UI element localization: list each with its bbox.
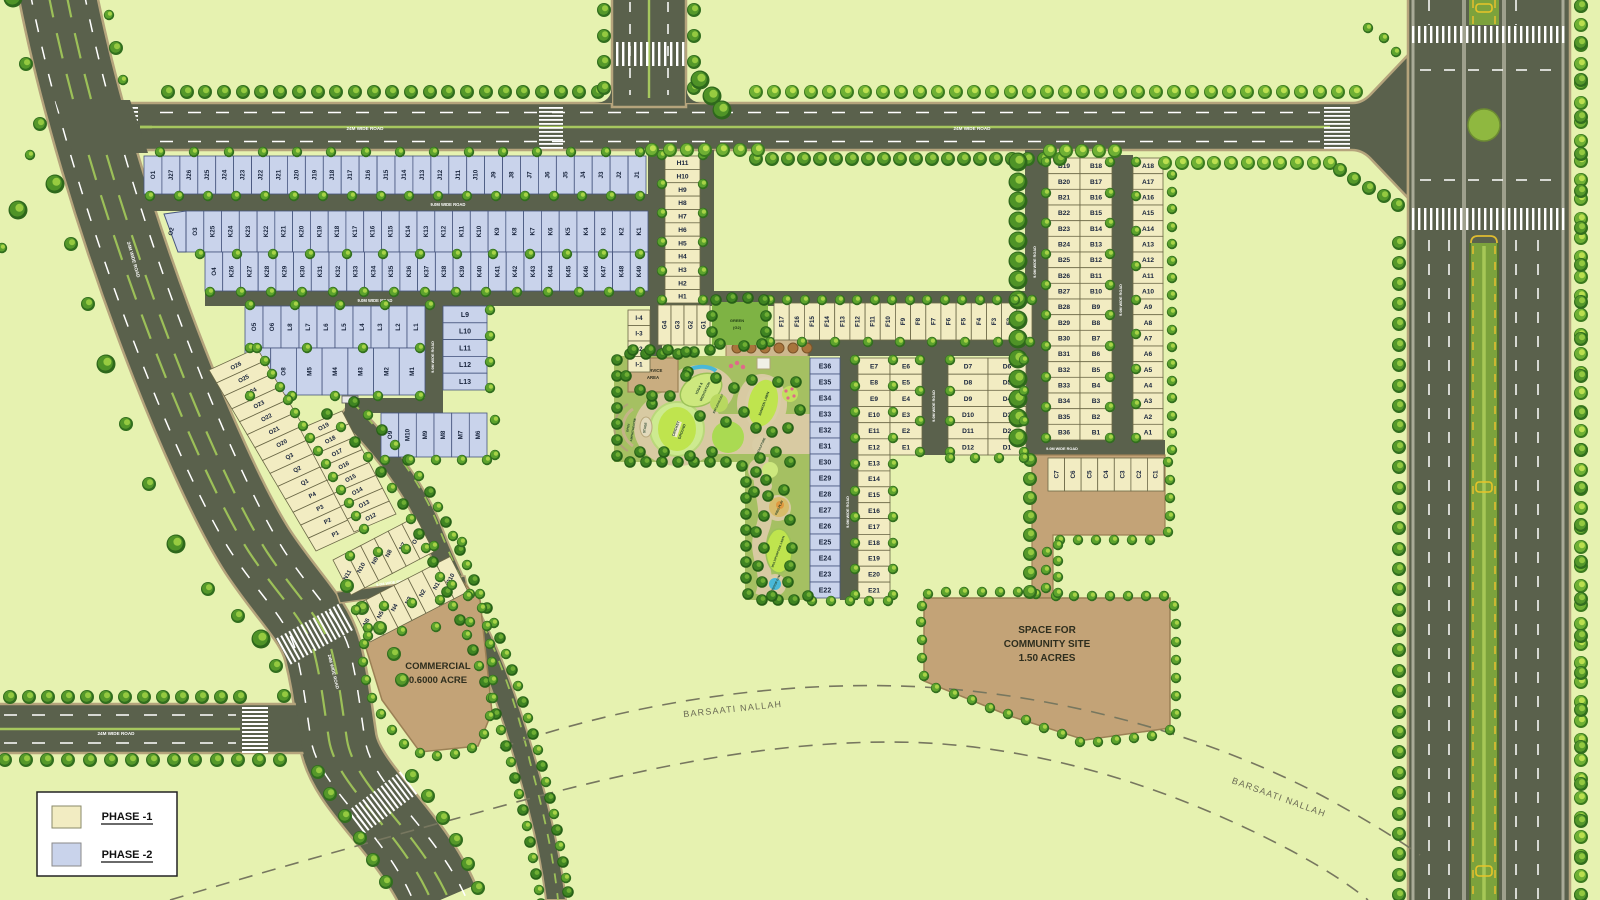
svg-text:K49: K49 bbox=[636, 265, 643, 277]
svg-text:D12: D12 bbox=[962, 444, 974, 451]
svg-text:F4: F4 bbox=[976, 317, 983, 325]
svg-text:J7: J7 bbox=[527, 171, 534, 179]
svg-text:F13: F13 bbox=[839, 316, 846, 327]
svg-text:B3: B3 bbox=[1092, 398, 1101, 405]
svg-text:K1: K1 bbox=[636, 227, 643, 236]
svg-text:J11: J11 bbox=[455, 169, 462, 180]
svg-text:H9: H9 bbox=[678, 187, 687, 194]
svg-text:B25: B25 bbox=[1058, 257, 1070, 264]
svg-text:K2: K2 bbox=[618, 227, 625, 236]
svg-text:E12: E12 bbox=[868, 444, 880, 451]
svg-text:E35: E35 bbox=[819, 379, 832, 386]
svg-text:K4: K4 bbox=[583, 227, 590, 236]
svg-text:K20: K20 bbox=[299, 225, 306, 237]
svg-text:J25: J25 bbox=[204, 169, 211, 180]
svg-text:H3: H3 bbox=[678, 267, 687, 274]
svg-text:K19: K19 bbox=[316, 225, 323, 237]
svg-text:E1: E1 bbox=[902, 444, 910, 451]
svg-text:9.0M WIDE ROAD: 9.0M WIDE ROAD bbox=[1046, 447, 1078, 451]
svg-text:J13: J13 bbox=[419, 169, 426, 180]
svg-text:B29: B29 bbox=[1058, 320, 1070, 327]
svg-text:A14: A14 bbox=[1142, 226, 1154, 233]
svg-text:B12: B12 bbox=[1090, 257, 1102, 264]
svg-text:K3: K3 bbox=[601, 227, 608, 236]
svg-text:J2: J2 bbox=[616, 171, 623, 179]
svg-text:B6: B6 bbox=[1092, 351, 1101, 358]
svg-text:K18: K18 bbox=[334, 225, 341, 237]
svg-text:B18: B18 bbox=[1090, 163, 1102, 170]
svg-text:E16: E16 bbox=[868, 508, 880, 515]
svg-text:H7: H7 bbox=[678, 214, 687, 221]
svg-text:E20: E20 bbox=[868, 572, 880, 579]
svg-text:J6: J6 bbox=[544, 171, 551, 179]
svg-text:K41: K41 bbox=[494, 265, 501, 277]
svg-text:K30: K30 bbox=[300, 265, 307, 277]
svg-text:9.0M WIDE ROAD: 9.0M WIDE ROAD bbox=[431, 341, 435, 373]
svg-text:B5: B5 bbox=[1092, 367, 1101, 374]
svg-text:A7: A7 bbox=[1144, 336, 1153, 343]
svg-text:L7: L7 bbox=[305, 323, 312, 331]
svg-text:E7: E7 bbox=[870, 364, 878, 371]
svg-text:B30: B30 bbox=[1058, 336, 1070, 343]
svg-text:E28: E28 bbox=[819, 491, 832, 498]
svg-text:H8: H8 bbox=[678, 200, 687, 207]
svg-text:(G2): (G2) bbox=[733, 325, 742, 330]
svg-text:O1: O1 bbox=[150, 170, 157, 179]
svg-text:K7: K7 bbox=[530, 227, 537, 236]
svg-text:E36: E36 bbox=[819, 363, 832, 370]
svg-text:J19: J19 bbox=[311, 169, 318, 180]
svg-text:M9: M9 bbox=[422, 430, 429, 439]
svg-text:M4: M4 bbox=[332, 367, 339, 376]
svg-text:D8: D8 bbox=[964, 380, 973, 387]
svg-text:B10: B10 bbox=[1090, 289, 1102, 296]
svg-text:E17: E17 bbox=[868, 524, 880, 531]
svg-text:F17: F17 bbox=[779, 316, 786, 327]
svg-text:F14: F14 bbox=[824, 316, 831, 327]
svg-text:J8: J8 bbox=[509, 171, 516, 179]
svg-text:A13: A13 bbox=[1142, 242, 1154, 249]
svg-text:E23: E23 bbox=[819, 571, 832, 578]
svg-text:O3: O3 bbox=[192, 227, 199, 236]
svg-text:L5: L5 bbox=[341, 323, 348, 331]
svg-text:H2: H2 bbox=[678, 280, 687, 287]
svg-text:A17: A17 bbox=[1142, 179, 1154, 186]
svg-text:C6: C6 bbox=[1070, 470, 1077, 479]
svg-text:M2: M2 bbox=[383, 367, 390, 376]
svg-text:E4: E4 bbox=[902, 396, 910, 403]
svg-text:B21: B21 bbox=[1058, 195, 1070, 202]
svg-text:F12: F12 bbox=[855, 316, 862, 327]
svg-text:K43: K43 bbox=[530, 265, 537, 277]
svg-text:K6: K6 bbox=[547, 227, 554, 236]
svg-text:PHASE -1: PHASE -1 bbox=[102, 811, 153, 823]
svg-text:J21: J21 bbox=[276, 169, 283, 180]
svg-text:M7: M7 bbox=[458, 430, 465, 439]
svg-text:K12: K12 bbox=[441, 225, 448, 237]
svg-text:B11: B11 bbox=[1090, 273, 1102, 280]
svg-text:F16: F16 bbox=[794, 316, 801, 327]
svg-text:SPACE FOR: SPACE FOR bbox=[1018, 625, 1076, 636]
svg-text:L6: L6 bbox=[323, 323, 330, 331]
svg-text:B31: B31 bbox=[1058, 351, 1070, 358]
svg-text:B22: B22 bbox=[1058, 210, 1070, 217]
svg-text:J17: J17 bbox=[347, 169, 354, 180]
svg-text:B15: B15 bbox=[1090, 210, 1102, 217]
svg-text:A5: A5 bbox=[1144, 367, 1153, 374]
svg-text:D11: D11 bbox=[962, 428, 974, 435]
svg-text:E14: E14 bbox=[868, 476, 880, 483]
svg-text:A3: A3 bbox=[1144, 398, 1153, 405]
svg-text:E27: E27 bbox=[819, 507, 832, 514]
svg-text:C5: C5 bbox=[1086, 470, 1093, 479]
svg-text:L13: L13 bbox=[459, 379, 471, 386]
svg-text:E15: E15 bbox=[868, 492, 880, 499]
svg-text:1.50 ACRES: 1.50 ACRES bbox=[1019, 653, 1076, 664]
svg-text:K22: K22 bbox=[263, 225, 270, 237]
svg-text:L2: L2 bbox=[395, 323, 402, 331]
svg-text:O4: O4 bbox=[211, 267, 218, 276]
svg-text:A16: A16 bbox=[1142, 195, 1154, 202]
svg-text:L12: L12 bbox=[459, 362, 471, 369]
svg-text:J1: J1 bbox=[634, 171, 641, 179]
svg-text:B2: B2 bbox=[1092, 414, 1101, 421]
svg-text:G4: G4 bbox=[662, 320, 669, 329]
svg-text:E3: E3 bbox=[902, 412, 910, 419]
svg-text:COMMUNITY SITE: COMMUNITY SITE bbox=[1004, 639, 1091, 650]
svg-text:9.0M WIDE ROAD: 9.0M WIDE ROAD bbox=[431, 202, 466, 207]
svg-text:H4: H4 bbox=[678, 254, 687, 261]
svg-text:A15: A15 bbox=[1142, 210, 1154, 217]
svg-text:A2: A2 bbox=[1144, 414, 1153, 421]
svg-text:J4: J4 bbox=[580, 171, 587, 179]
svg-text:J14: J14 bbox=[401, 169, 408, 180]
svg-text:E25: E25 bbox=[819, 539, 832, 546]
svg-text:J26: J26 bbox=[186, 169, 193, 180]
svg-text:D7: D7 bbox=[964, 364, 973, 371]
svg-text:K45: K45 bbox=[565, 265, 572, 277]
svg-text:K21: K21 bbox=[281, 225, 288, 237]
svg-text:M5: M5 bbox=[306, 367, 313, 376]
svg-text:C1: C1 bbox=[1153, 470, 1160, 479]
svg-text:K23: K23 bbox=[245, 225, 252, 237]
svg-text:K47: K47 bbox=[601, 265, 608, 277]
svg-text:O9: O9 bbox=[387, 430, 394, 439]
svg-text:B36: B36 bbox=[1058, 430, 1070, 437]
svg-text:A6: A6 bbox=[1144, 351, 1153, 358]
svg-text:E31: E31 bbox=[819, 443, 832, 450]
svg-text:F11: F11 bbox=[870, 316, 877, 327]
svg-text:D1: D1 bbox=[1003, 444, 1012, 451]
svg-text:K28: K28 bbox=[264, 265, 271, 277]
svg-text:O6: O6 bbox=[269, 322, 276, 331]
svg-text:K37: K37 bbox=[424, 265, 431, 277]
svg-text:A9: A9 bbox=[1144, 304, 1153, 311]
svg-text:K15: K15 bbox=[387, 225, 394, 237]
svg-text:24M WIDE ROAD: 24M WIDE ROAD bbox=[953, 126, 991, 131]
svg-text:B1: B1 bbox=[1092, 430, 1101, 437]
svg-text:M6: M6 bbox=[475, 430, 482, 439]
svg-text:E2: E2 bbox=[902, 428, 910, 435]
svg-text:I-3: I-3 bbox=[635, 331, 643, 338]
svg-text:B35: B35 bbox=[1058, 414, 1070, 421]
svg-text:K33: K33 bbox=[353, 265, 360, 277]
svg-text:C3: C3 bbox=[1120, 470, 1127, 479]
svg-text:E24: E24 bbox=[819, 555, 832, 562]
svg-text:K48: K48 bbox=[618, 265, 625, 277]
svg-text:E26: E26 bbox=[819, 523, 832, 530]
svg-text:K8: K8 bbox=[512, 227, 519, 236]
svg-text:E33: E33 bbox=[819, 411, 832, 418]
svg-text:L10: L10 bbox=[459, 329, 471, 336]
svg-text:E22: E22 bbox=[819, 587, 832, 594]
svg-text:J24: J24 bbox=[222, 169, 229, 180]
svg-text:C4: C4 bbox=[1103, 470, 1110, 479]
svg-text:B33: B33 bbox=[1058, 383, 1070, 390]
svg-text:E9: E9 bbox=[870, 396, 878, 403]
svg-text:J23: J23 bbox=[240, 169, 247, 180]
svg-text:B28: B28 bbox=[1058, 304, 1070, 311]
svg-text:J9: J9 bbox=[491, 171, 498, 179]
svg-text:F5: F5 bbox=[961, 317, 968, 325]
svg-text:B26: B26 bbox=[1058, 273, 1070, 280]
svg-text:F3: F3 bbox=[991, 317, 998, 325]
svg-text:9.0M WIDE ROAD: 9.0M WIDE ROAD bbox=[1033, 246, 1037, 278]
svg-text:B8: B8 bbox=[1092, 320, 1101, 327]
svg-text:A8: A8 bbox=[1144, 320, 1153, 327]
svg-text:K29: K29 bbox=[282, 265, 289, 277]
svg-text:B9: B9 bbox=[1092, 304, 1101, 311]
svg-text:K42: K42 bbox=[512, 265, 519, 277]
svg-text:M8: M8 bbox=[440, 430, 447, 439]
svg-text:L8: L8 bbox=[287, 323, 294, 331]
svg-text:K46: K46 bbox=[583, 265, 590, 277]
svg-text:H6: H6 bbox=[678, 227, 687, 234]
svg-text:B7: B7 bbox=[1092, 336, 1101, 343]
svg-text:F8: F8 bbox=[915, 317, 922, 325]
svg-text:K11: K11 bbox=[458, 225, 465, 237]
svg-text:O8: O8 bbox=[281, 367, 288, 376]
svg-text:F9: F9 bbox=[900, 317, 907, 325]
svg-text:G1: G1 bbox=[701, 320, 708, 329]
svg-text:A11: A11 bbox=[1142, 273, 1154, 280]
svg-text:K9: K9 bbox=[494, 227, 501, 236]
svg-text:K5: K5 bbox=[565, 227, 572, 236]
svg-text:D6: D6 bbox=[1003, 364, 1012, 371]
svg-text:A18: A18 bbox=[1142, 163, 1154, 170]
svg-text:E21: E21 bbox=[868, 588, 880, 595]
svg-text:K44: K44 bbox=[548, 265, 555, 277]
svg-text:K32: K32 bbox=[335, 265, 342, 277]
svg-text:J10: J10 bbox=[473, 169, 480, 180]
svg-text:K16: K16 bbox=[370, 225, 377, 237]
svg-text:L11: L11 bbox=[459, 345, 471, 352]
svg-text:F10: F10 bbox=[885, 316, 892, 327]
svg-text:D9: D9 bbox=[964, 396, 973, 403]
svg-text:K35: K35 bbox=[388, 265, 395, 277]
svg-text:COMMERCIAL: COMMERCIAL bbox=[405, 661, 471, 672]
svg-text:B20: B20 bbox=[1058, 179, 1070, 186]
svg-text:M3: M3 bbox=[358, 367, 365, 376]
svg-text:K40: K40 bbox=[477, 265, 484, 277]
svg-text:K24: K24 bbox=[227, 225, 234, 237]
svg-text:0.6000 ACRE: 0.6000 ACRE bbox=[409, 675, 467, 686]
svg-text:K14: K14 bbox=[405, 225, 412, 237]
svg-text:J12: J12 bbox=[437, 169, 444, 180]
svg-text:B13: B13 bbox=[1090, 242, 1102, 249]
svg-text:E30: E30 bbox=[819, 459, 832, 466]
svg-text:K17: K17 bbox=[352, 225, 359, 237]
svg-text:F15: F15 bbox=[809, 316, 816, 327]
svg-text:C7: C7 bbox=[1053, 470, 1060, 479]
svg-text:K31: K31 bbox=[317, 265, 324, 277]
svg-text:E18: E18 bbox=[868, 540, 880, 547]
svg-text:K38: K38 bbox=[441, 265, 448, 277]
svg-text:K34: K34 bbox=[370, 265, 377, 277]
svg-text:H1: H1 bbox=[678, 294, 687, 301]
svg-text:G3: G3 bbox=[675, 320, 682, 329]
svg-text:B24: B24 bbox=[1058, 242, 1070, 249]
svg-text:E29: E29 bbox=[819, 475, 832, 482]
svg-text:24M WIDE ROAD: 24M WIDE ROAD bbox=[97, 731, 135, 736]
svg-text:E10: E10 bbox=[868, 412, 880, 419]
svg-text:M10: M10 bbox=[405, 428, 412, 441]
svg-text:C2: C2 bbox=[1136, 470, 1143, 479]
svg-text:K36: K36 bbox=[406, 265, 413, 277]
svg-text:K27: K27 bbox=[246, 265, 253, 277]
svg-text:I-4: I-4 bbox=[635, 315, 643, 322]
svg-text:B34: B34 bbox=[1058, 398, 1070, 405]
svg-text:J15: J15 bbox=[383, 169, 390, 180]
svg-text:24M WIDE ROAD: 24M WIDE ROAD bbox=[346, 126, 384, 131]
svg-text:AREA: AREA bbox=[647, 375, 659, 380]
svg-text:D10: D10 bbox=[962, 412, 974, 419]
svg-text:J22: J22 bbox=[258, 169, 265, 180]
svg-text:F7: F7 bbox=[930, 317, 937, 325]
svg-text:M1: M1 bbox=[409, 367, 416, 376]
svg-text:B32: B32 bbox=[1058, 367, 1070, 374]
svg-text:GREEN: GREEN bbox=[730, 318, 744, 323]
svg-text:K39: K39 bbox=[459, 265, 466, 277]
svg-text:E34: E34 bbox=[819, 395, 832, 402]
svg-text:E32: E32 bbox=[819, 427, 832, 434]
svg-text:K10: K10 bbox=[476, 225, 483, 237]
svg-text:L9: L9 bbox=[461, 312, 469, 319]
svg-text:E6: E6 bbox=[902, 364, 910, 371]
svg-text:K25: K25 bbox=[210, 225, 217, 237]
svg-text:B16: B16 bbox=[1090, 195, 1102, 202]
svg-text:J18: J18 bbox=[329, 169, 336, 180]
svg-text:B4: B4 bbox=[1092, 383, 1101, 390]
svg-text:9.0M WIDE ROAD: 9.0M WIDE ROAD bbox=[932, 390, 936, 422]
svg-text:A1: A1 bbox=[1144, 430, 1153, 437]
svg-text:B17: B17 bbox=[1090, 179, 1102, 186]
svg-text:B23: B23 bbox=[1058, 226, 1070, 233]
svg-text:B14: B14 bbox=[1090, 226, 1102, 233]
svg-text:PHASE -2: PHASE -2 bbox=[102, 849, 153, 861]
svg-text:E5: E5 bbox=[902, 380, 910, 387]
svg-text:G2: G2 bbox=[688, 320, 695, 329]
svg-text:H10: H10 bbox=[676, 173, 688, 180]
svg-text:J3: J3 bbox=[598, 171, 605, 179]
svg-text:J20: J20 bbox=[293, 169, 300, 180]
svg-text:9.0M WIDE ROAD: 9.0M WIDE ROAD bbox=[846, 496, 850, 528]
svg-text:F6: F6 bbox=[946, 317, 953, 325]
svg-text:L4: L4 bbox=[359, 323, 366, 331]
svg-text:J16: J16 bbox=[365, 169, 372, 180]
svg-text:E8: E8 bbox=[870, 380, 878, 387]
svg-text:J5: J5 bbox=[562, 171, 569, 179]
svg-text:B27: B27 bbox=[1058, 289, 1070, 296]
svg-text:H11: H11 bbox=[677, 160, 689, 167]
svg-text:O5: O5 bbox=[251, 322, 258, 331]
svg-text:A4: A4 bbox=[1144, 383, 1153, 390]
svg-text:E13: E13 bbox=[868, 460, 880, 467]
svg-text:E11: E11 bbox=[868, 428, 880, 435]
svg-text:E19: E19 bbox=[868, 556, 880, 563]
svg-text:9.0M WIDE ROAD: 9.0M WIDE ROAD bbox=[1119, 284, 1123, 316]
svg-text:L1: L1 bbox=[413, 323, 420, 331]
svg-text:K13: K13 bbox=[423, 225, 430, 237]
svg-text:J27: J27 bbox=[168, 169, 175, 180]
svg-text:L3: L3 bbox=[377, 323, 384, 331]
svg-text:H5: H5 bbox=[678, 240, 687, 247]
svg-text:K26: K26 bbox=[229, 265, 236, 277]
svg-text:A12: A12 bbox=[1142, 257, 1154, 264]
svg-text:I-1: I-1 bbox=[635, 362, 643, 369]
svg-text:A10: A10 bbox=[1142, 289, 1154, 296]
